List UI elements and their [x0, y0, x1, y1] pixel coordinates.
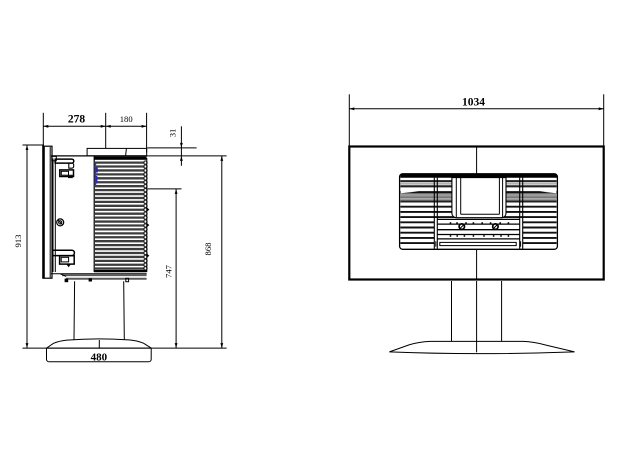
- svg-text:1034: 1034: [462, 97, 485, 109]
- svg-text:913: 913: [13, 235, 23, 248]
- svg-text:180: 180: [120, 114, 133, 124]
- svg-text:278: 278: [68, 114, 86, 126]
- svg-text:480: 480: [91, 352, 108, 364]
- svg-text:747: 747: [164, 264, 174, 278]
- svg-text:31: 31: [168, 129, 178, 138]
- svg-text:868: 868: [203, 243, 213, 256]
